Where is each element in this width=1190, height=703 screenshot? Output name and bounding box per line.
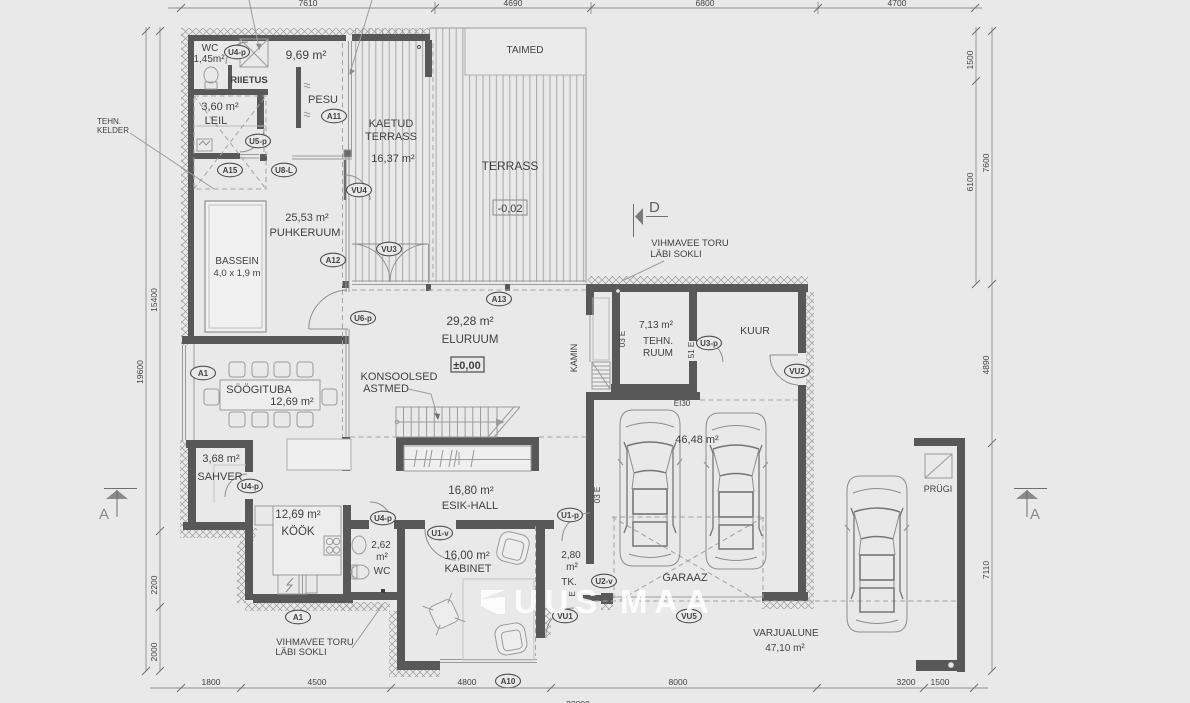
svg-text:46,48 m²: 46,48 m²: [675, 434, 719, 446]
svg-text:KUUR: KUUR: [740, 325, 770, 337]
svg-text:16,37 m²: 16,37 m²: [371, 153, 415, 165]
svg-text:U4-p: U4-p: [241, 482, 259, 491]
svg-text:U5-p: U5-p: [249, 137, 267, 146]
svg-text:EI30: EI30: [674, 399, 691, 408]
svg-text:BASSEIN: BASSEIN: [215, 256, 258, 267]
svg-text:A15: A15: [223, 166, 238, 175]
svg-text:7,13 m²: 7,13 m²: [639, 320, 674, 331]
svg-text:29,28 m²: 29,28 m²: [446, 314, 493, 328]
svg-text:TEHN.: TEHN.: [643, 336, 673, 347]
svg-text:KÖÖK: KÖÖK: [281, 526, 315, 538]
svg-text:7610: 7610: [299, 0, 318, 8]
svg-text:ASTMED: ASTMED: [363, 383, 409, 395]
svg-text:KAMIN: KAMIN: [569, 344, 579, 373]
svg-text:3200: 3200: [897, 677, 916, 687]
svg-text:±0,00: ±0,00: [453, 360, 480, 372]
svg-text:7600: 7600: [981, 153, 991, 172]
svg-text:WC: WC: [374, 566, 391, 577]
svg-text:4,0 x 1,9 m: 4,0 x 1,9 m: [214, 268, 261, 279]
svg-text:3,60 m²: 3,60 m²: [201, 101, 239, 113]
svg-text:VU2: VU2: [789, 367, 805, 376]
svg-text:2,80: 2,80: [561, 550, 581, 561]
svg-text:1500: 1500: [931, 677, 950, 687]
svg-text:A11: A11: [327, 112, 342, 121]
svg-text:VU3: VU3: [381, 245, 397, 254]
svg-text:VARJUALUNE: VARJUALUNE: [753, 628, 819, 639]
svg-text:SÖÖGITUBA: SÖÖGITUBA: [226, 384, 292, 396]
svg-text:U1-p: U1-p: [561, 511, 579, 520]
svg-text:KABINET: KABINET: [444, 563, 491, 575]
svg-text:4700: 4700: [888, 0, 907, 8]
svg-text:U4-p: U4-p: [228, 48, 246, 57]
svg-text:U1-v: U1-v: [431, 529, 449, 538]
svg-text:-0,02: -0,02: [497, 203, 522, 215]
svg-text:19600: 19600: [135, 360, 145, 384]
svg-text:03 E: 03 E: [618, 331, 627, 347]
svg-text:RUUM: RUUM: [643, 348, 673, 359]
svg-text:23800: 23800: [566, 699, 590, 703]
svg-text:6100: 6100: [965, 172, 975, 191]
svg-text:4800: 4800: [458, 677, 477, 687]
svg-text:U3-p: U3-p: [700, 339, 718, 348]
svg-text:A: A: [99, 506, 109, 523]
svg-text:LÄBI SOKLI: LÄBI SOKLI: [275, 647, 326, 658]
svg-text:VU4: VU4: [351, 186, 367, 195]
svg-text:SAHVER: SAHVER: [197, 471, 242, 483]
svg-text:1500: 1500: [965, 50, 975, 69]
svg-text:12,69 m²: 12,69 m²: [275, 509, 321, 521]
svg-text:2,62: 2,62: [371, 540, 391, 551]
svg-text:25,53 m²: 25,53 m²: [285, 212, 329, 224]
svg-text:16,80 m²: 16,80 m²: [448, 485, 494, 497]
svg-text:1800: 1800: [202, 677, 221, 687]
svg-text:15400: 15400: [149, 288, 159, 312]
svg-text:LEIL: LEIL: [205, 115, 228, 127]
svg-text:D: D: [649, 199, 660, 216]
svg-text:KAETUD: KAETUD: [369, 118, 414, 130]
svg-text:U6-p: U6-p: [354, 314, 372, 323]
svg-text:12,69 m²: 12,69 m²: [270, 396, 314, 408]
svg-text:16,00 m²: 16,00 m²: [444, 550, 490, 562]
svg-text:WC: WC: [202, 43, 219, 54]
svg-text:U8-L: U8-L: [275, 166, 293, 175]
svg-text:LÄBI SOKLI: LÄBI SOKLI: [650, 249, 701, 260]
svg-text:7110: 7110: [981, 561, 991, 580]
svg-text:A: A: [1030, 506, 1040, 523]
svg-text:VIHMAVEE TORU: VIHMAVEE TORU: [651, 238, 729, 249]
svg-text:2200: 2200: [149, 575, 159, 594]
svg-text:A1: A1: [198, 369, 209, 378]
svg-text:U4-p: U4-p: [374, 514, 392, 523]
svg-text:PUHKERUUM: PUHKERUUM: [270, 227, 341, 239]
svg-text:4890: 4890: [981, 355, 991, 374]
svg-text:3,68 m²: 3,68 m²: [202, 453, 240, 465]
svg-text:RIIETUS: RIIETUS: [230, 75, 267, 86]
svg-text:4690: 4690: [504, 0, 523, 8]
svg-text:6800: 6800: [696, 0, 715, 8]
svg-text:03 E: 03 E: [593, 487, 602, 503]
svg-text:4500: 4500: [308, 677, 327, 687]
svg-text:KELDER: KELDER: [97, 126, 129, 135]
svg-text:9,69 m²: 9,69 m²: [286, 48, 327, 62]
svg-text:UUS MAA: UUS MAA: [514, 583, 716, 620]
svg-text:TAIMED: TAIMED: [506, 45, 543, 56]
svg-text:TERRASS: TERRASS: [365, 131, 417, 143]
svg-text:51 E: 51 E: [687, 342, 696, 358]
svg-text:m²: m²: [566, 562, 578, 573]
svg-text:m²: m²: [376, 552, 388, 563]
svg-text:A10: A10: [501, 677, 516, 686]
svg-text:KONSOOLSED: KONSOOLSED: [360, 371, 437, 383]
svg-text:PRÜGI: PRÜGI: [924, 484, 953, 494]
svg-text:47,10 m²: 47,10 m²: [765, 643, 805, 654]
svg-text:ELURUUM: ELURUUM: [442, 334, 499, 346]
svg-text:A12: A12: [326, 256, 341, 265]
svg-text:TERRASS: TERRASS: [482, 159, 539, 173]
svg-text:8000: 8000: [669, 677, 688, 687]
svg-text:ESIK-HALL: ESIK-HALL: [442, 500, 498, 512]
svg-text:1,45m²: 1,45m²: [193, 54, 225, 65]
svg-text:A13: A13: [492, 295, 507, 304]
svg-text:2000: 2000: [149, 642, 159, 661]
svg-text:TEHN.: TEHN.: [97, 117, 121, 126]
svg-text:PESU: PESU: [308, 94, 338, 106]
svg-text:A1: A1: [293, 613, 304, 622]
